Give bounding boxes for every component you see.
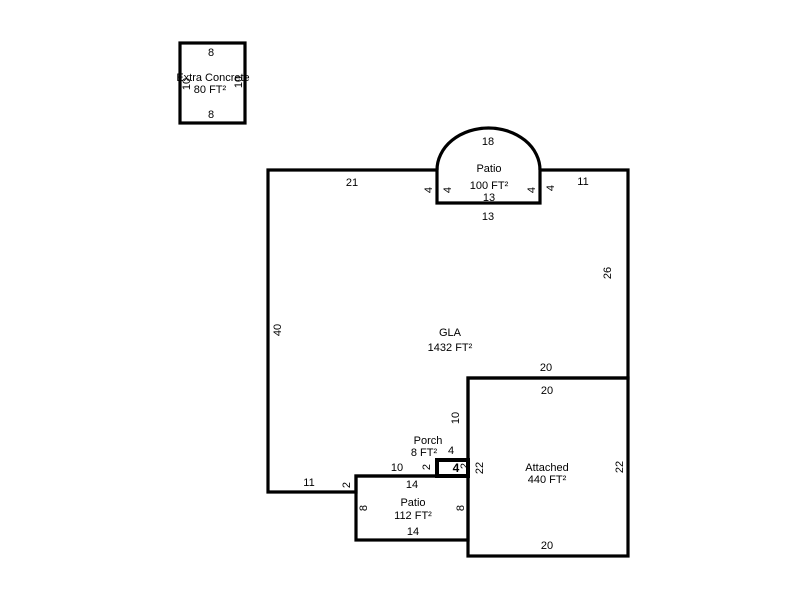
extra-concrete-dim-bottom: 8 (208, 109, 214, 121)
gla-dim-porch-top: 4 (448, 445, 454, 457)
attached-dim-left: 22 (474, 462, 486, 474)
porch-area: 8 FT² (411, 447, 438, 459)
patio-top-dim-arc: 18 (482, 136, 494, 148)
extra-concrete-area: 80 FT² (194, 84, 227, 96)
patio-bottom-dim-bottom: 14 (407, 526, 419, 538)
gla-dim-attach-top: 20 (540, 362, 552, 374)
gla-dim-bottom-left: 11 (303, 477, 314, 489)
attached-area: 440 FT² (528, 474, 567, 486)
gla-dim-bottom-mid: 10 (391, 462, 403, 474)
patio-top-dim-left-outer: 4 (423, 187, 435, 193)
patio-bottom-area: 112 FT² (394, 510, 432, 522)
extra-concrete-dim-right: 10 (233, 76, 245, 88)
attached-name: Attached (525, 462, 568, 474)
gla-dim-left: 40 (272, 324, 284, 336)
extra-concrete-dim-left: 10 (181, 78, 193, 90)
gla-dim-right: 26 (602, 267, 614, 279)
gla-dim-inner-right: 10 (450, 412, 462, 424)
gla-name: GLA (439, 327, 462, 339)
patio-top-dim-base-outer: 13 (482, 211, 494, 223)
patio-bottom-dim-top: 14 (406, 479, 418, 491)
floor-plan-canvas: 8 Extra Concrete 80 FT² 8 10 10 18 Patio… (0, 0, 800, 600)
gla-dim-porch-side: 2 (421, 464, 433, 470)
attached-dim-right: 22 (614, 461, 626, 473)
gla-dim-step: 2 (341, 482, 353, 488)
patio-top-dim-right-inner: 4 (526, 187, 538, 193)
patio-top-dim-base-inner: 13 (483, 192, 495, 204)
porch-name: Porch (414, 435, 443, 447)
extra-concrete-dim-top: 8 (208, 47, 214, 59)
gla-dim-top-right: 11 (577, 176, 588, 188)
patio-top-dim-left-inner: 4 (442, 187, 454, 193)
patio-bottom-dim-left: 8 (358, 505, 370, 511)
gla-area: 1432 FT² (428, 342, 473, 354)
patio-top-dim-right-outer: 4 (545, 185, 557, 191)
porch-dim-height: 2 (459, 463, 471, 469)
patio-top-name: Patio (476, 163, 501, 175)
patio-bottom-name: Patio (400, 497, 425, 509)
patio-bottom-dim-right: 8 (455, 505, 467, 511)
gla-dim-top: 21 (346, 177, 358, 189)
floor-plan-sketch: 8 Extra Concrete 80 FT² 8 10 10 18 Patio… (0, 0, 800, 600)
attached-dim-top: 20 (541, 385, 553, 397)
patio-top-area: 100 FT² (470, 180, 509, 192)
attached-dim-bottom: 20 (541, 540, 553, 552)
